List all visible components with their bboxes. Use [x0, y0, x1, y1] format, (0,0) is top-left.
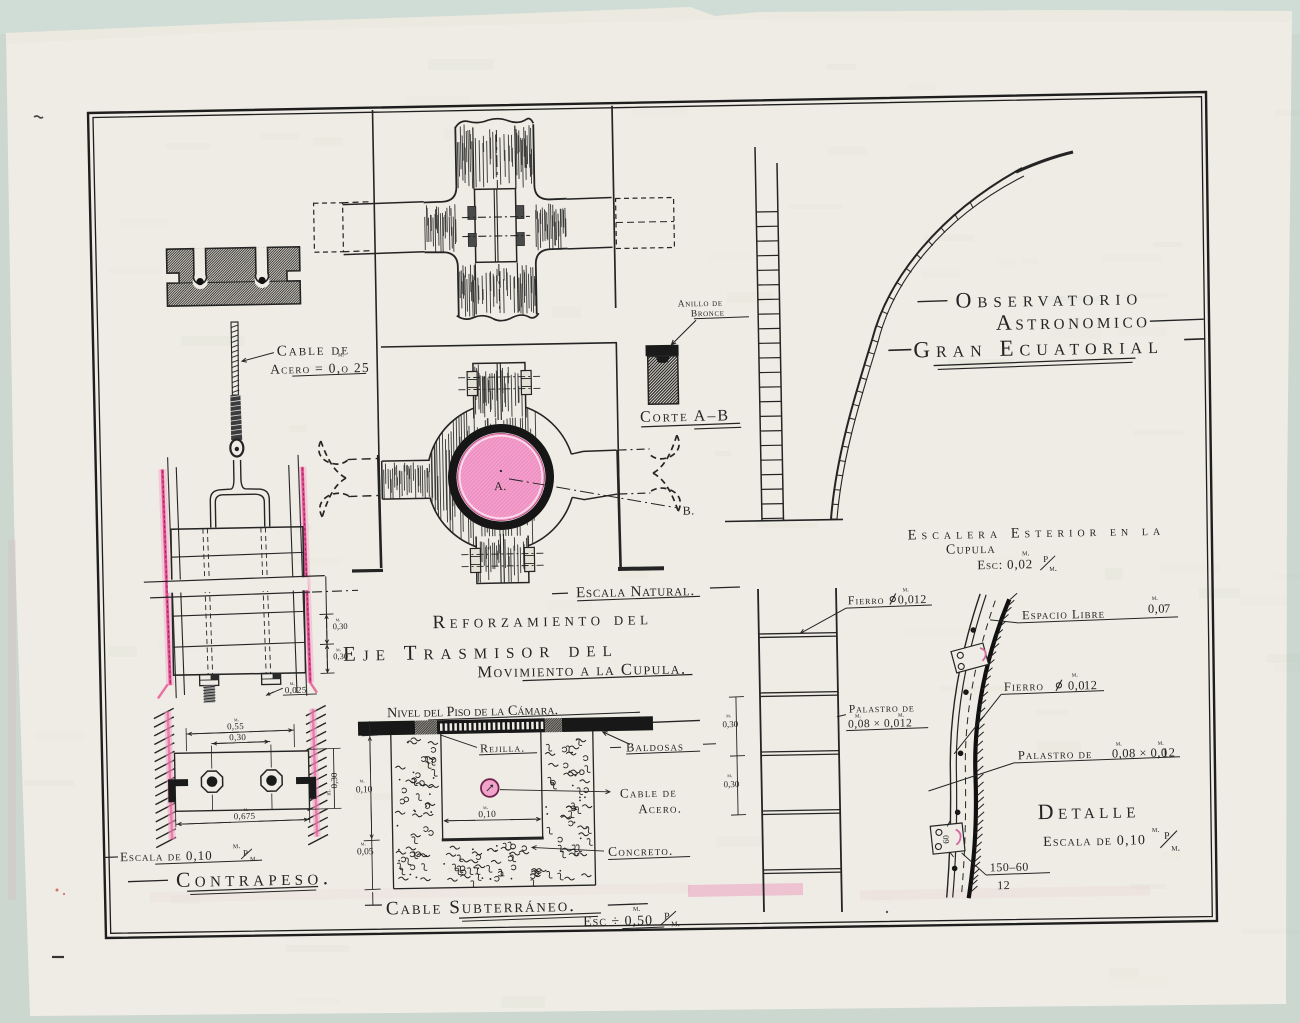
svg-text:m.: m.	[727, 773, 733, 779]
svg-text:Reforzamiento del: Reforzamiento del	[432, 608, 652, 633]
svg-text:m.: m.	[1152, 825, 1160, 834]
svg-text:m.: m.	[1152, 594, 1159, 602]
svg-text:Detalle: Detalle	[1037, 797, 1140, 824]
svg-text:m.: m.	[1072, 670, 1079, 678]
svg-text:Escala de 0,10: Escala de 0,10	[120, 848, 213, 865]
svg-text:m.: m.	[633, 904, 641, 913]
svg-text:0,0: 0,0	[1068, 678, 1085, 692]
svg-text:150–60: 150–60	[990, 860, 1029, 875]
svg-text:Fierro: Fierro	[1004, 679, 1044, 694]
svg-text:0,30: 0,30	[229, 732, 246, 742]
svg-text:0,025: 0,025	[285, 685, 307, 695]
svg-text:m.: m.	[1158, 739, 1165, 747]
svg-text:0,30: 0,30	[723, 779, 739, 789]
svg-text:m.: m.	[483, 805, 489, 811]
svg-text:Cable Subterráneo.: Cable Subterráneo.	[386, 895, 576, 919]
svg-text:m.: m.	[671, 918, 680, 929]
svg-text:0,30: 0,30	[722, 719, 738, 729]
svg-text:m.: m.	[233, 841, 241, 850]
svg-text:m.: m.	[1171, 843, 1180, 854]
svg-text:Cupula: Cupula	[946, 542, 996, 558]
svg-text:0,05: 0,05	[357, 847, 374, 857]
svg-text:60: 60	[940, 835, 951, 845]
svg-text:B.: B.	[683, 503, 695, 517]
svg-text:12: 12	[914, 592, 927, 606]
svg-text:0,0: 0,0	[898, 592, 915, 606]
svg-text:m.: m.	[336, 647, 342, 653]
svg-text:0,0: 0,0	[1148, 602, 1165, 616]
svg-text:m.: m.	[1116, 739, 1123, 747]
svg-text:m.: m.	[244, 807, 250, 813]
svg-text:12: 12	[997, 878, 1010, 892]
svg-text:m.: m.	[903, 585, 910, 593]
svg-text:Contrapeso.: Contrapeso.	[176, 865, 333, 892]
svg-text:m.: m.	[855, 712, 862, 719]
svg-text:0,30: 0,30	[329, 772, 339, 788]
svg-text:7: 7	[1164, 602, 1171, 616]
svg-text:m.: m.	[726, 713, 732, 719]
svg-text:Escala de 0,10: Escala de 0,10	[1043, 833, 1146, 850]
svg-text:m.: m.	[290, 681, 296, 687]
svg-text:m.: m.	[250, 853, 258, 863]
svg-text:Concreto.: Concreto.	[608, 843, 674, 859]
svg-text:m.: m.	[1022, 548, 1030, 557]
svg-text:Corte A–B: Corte A–B	[640, 407, 730, 426]
svg-text:A.: A.	[494, 479, 507, 493]
svg-text:m.: m.	[338, 350, 345, 358]
svg-text:m.: m.	[336, 617, 342, 623]
svg-text:m.: m.	[360, 778, 366, 784]
svg-text:m.: m.	[898, 712, 905, 719]
svg-text:0,10: 0,10	[478, 810, 496, 820]
svg-text:Fierro: Fierro	[848, 593, 885, 608]
svg-text:Acero.: Acero.	[638, 800, 682, 816]
svg-text:m.: m.	[361, 841, 367, 847]
svg-text:Esc: 0,02: Esc: 0,02	[977, 556, 1033, 572]
svg-text:m.: m.	[326, 789, 332, 796]
svg-text:12: 12	[1084, 678, 1098, 692]
svg-text:m.: m.	[1049, 563, 1057, 573]
svg-text:0,10: 0,10	[356, 785, 373, 795]
svg-text:m.: m.	[234, 717, 240, 723]
svg-text:Cable de: Cable de	[620, 785, 677, 801]
svg-text:Astronomico: Astronomico	[996, 307, 1151, 335]
